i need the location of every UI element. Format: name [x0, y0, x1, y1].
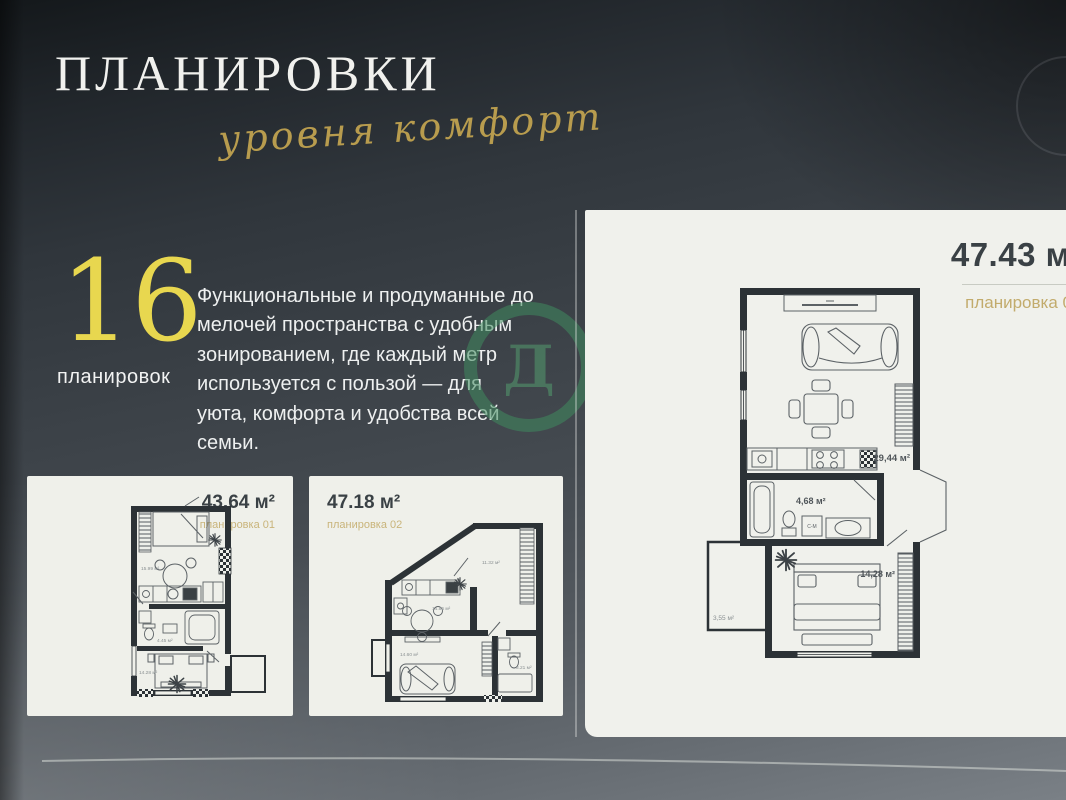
stat-number: 16 [60, 244, 203, 362]
tagline-script: уровня комфорт [217, 94, 605, 161]
wardrobe-strip [139, 512, 151, 552]
window-midlines [744, 330, 873, 655]
windows [741, 330, 872, 657]
bedroom-area-label: 14.60 м² [400, 652, 419, 658]
sofa-bed-symbol [153, 512, 209, 546]
plant-icon [776, 550, 797, 571]
living-area-label: 15.99 м² [141, 566, 160, 572]
window-sill-left [137, 689, 153, 697]
bed-symbol [148, 654, 214, 688]
plant-icon [168, 675, 185, 692]
balcony-outline [231, 656, 265, 692]
page-title: ПЛАНИРОВКИ [55, 44, 441, 102]
bathroom-symbols [139, 611, 219, 644]
bathroom-symbols [498, 638, 532, 692]
vent-shaft [484, 695, 502, 702]
watermark-letter: Д [503, 333, 555, 401]
floorplan-02-drawing: 14.86 м² 11.32 м² 14.60 м² 3.21 м² [336, 516, 546, 716]
vent-shaft [219, 548, 231, 574]
plant-icon [454, 578, 467, 591]
living-area-label: 29,44 м² [873, 453, 910, 464]
wardrobe-bedroom [898, 553, 913, 651]
corner-arc-decoration [1016, 56, 1066, 156]
sofa-symbol [802, 324, 898, 370]
entrance-opening [887, 470, 946, 546]
featured-plan-header: 47.43 м² планировка 0 [951, 236, 1066, 313]
kitchen-symbol [139, 582, 223, 602]
bath-area-label: 3.21 м² [516, 665, 532, 671]
bedroom-area-label: 14.28 м² [139, 670, 158, 676]
featured-plan-area: 47.43 м² [951, 236, 1066, 274]
kitchen-symbol [747, 448, 877, 470]
kitchen-area-label: 14.86 м² [432, 606, 451, 612]
washer-label: С-М [807, 524, 816, 530]
brochure-page: ПЛАНИРОВКИ уровня комфорт 16 планировок … [0, 0, 1066, 800]
bath-area-label: 4.45 м² [157, 638, 173, 644]
door-swing [488, 622, 500, 636]
page-fold-line [575, 210, 577, 737]
hall-wardrobe [520, 528, 534, 604]
sofa-symbol [400, 664, 455, 694]
bath-area-label: 4,68 м² [796, 496, 826, 506]
tv-symbol [784, 295, 876, 311]
angled-wall [391, 526, 475, 583]
window-sill-right [193, 689, 209, 697]
header-divider [962, 284, 1066, 285]
hall-area-label: 11.32 м² [482, 560, 500, 566]
bedroom-wardrobe [482, 642, 492, 676]
balcony-area-label: 3,55 м² [713, 615, 735, 622]
bedroom-area-label: 14,28 м² [860, 569, 895, 579]
plan-card-02-area: 47.18 м² [327, 492, 402, 514]
door-swing [454, 558, 468, 576]
plant-icon [209, 534, 222, 547]
floorplan-01-drawing: 15.99 м² 4.45 м² 14.28 м² [115, 496, 290, 711]
featured-plan-label: планировка 0 [951, 293, 1066, 313]
wardrobe-living [895, 384, 913, 446]
featured-floorplan-drawing: 3,55 м² [702, 284, 952, 662]
door-swing [207, 651, 219, 662]
plan-card-02: 47.18 м² планировка 02 [309, 476, 563, 716]
door-swing [185, 497, 199, 506]
stat-label: планировок [57, 366, 170, 389]
dining-table-symbol [789, 380, 853, 438]
walls [385, 523, 543, 702]
plan-card-01: 43.64 м² планировка 01 [27, 476, 293, 716]
featured-plan-panel: 47.43 м² планировка 0 [585, 210, 1066, 737]
